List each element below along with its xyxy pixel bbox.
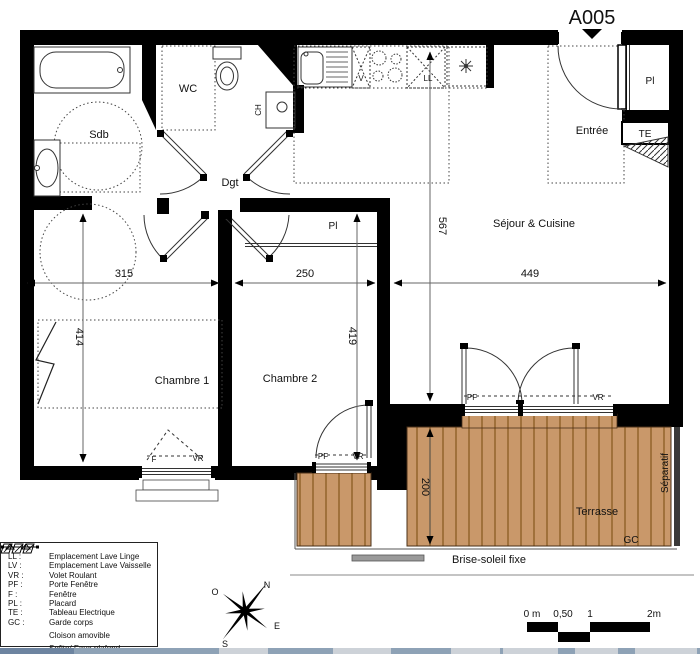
taskbar-sliver-segment[interactable] bbox=[219, 648, 268, 654]
taskbar-sliver-segment[interactable] bbox=[333, 648, 391, 654]
entry-closet bbox=[627, 45, 630, 110]
toilet bbox=[213, 47, 241, 90]
legend-row: GC :Garde corps bbox=[8, 618, 155, 627]
french-window-label-living: PF bbox=[467, 393, 477, 402]
room-label-bedroom2: Chambre 2 bbox=[263, 373, 317, 385]
scale-half: 0,50 bbox=[553, 609, 573, 620]
legend-row: PF :Porte Fenêtre bbox=[8, 580, 155, 589]
shutter-label-living: VR bbox=[592, 393, 603, 402]
taskbar-sliver-segment[interactable] bbox=[503, 648, 558, 654]
sunshade-label: Brise-soleil fixe bbox=[452, 554, 526, 566]
compass-n: N bbox=[264, 580, 271, 590]
shutter-label-bedroom2: VR bbox=[352, 452, 363, 461]
hob bbox=[372, 51, 402, 82]
dim-living-depth: 567 bbox=[436, 217, 448, 235]
legend-row: TE :Tableau Electrique bbox=[8, 608, 155, 617]
entrance-door-leaf bbox=[618, 45, 626, 109]
room-label-terrace: Terrasse bbox=[576, 506, 618, 518]
compass-icon: N O E S bbox=[201, 565, 289, 654]
turning-circle-bedroom1 bbox=[40, 204, 136, 300]
scale-bar: 0 m 0,50 1 2m bbox=[524, 609, 661, 642]
terrace-deck bbox=[295, 414, 680, 549]
taskbar-sliver-segment[interactable] bbox=[451, 648, 500, 654]
dishwasher-label: V bbox=[358, 74, 364, 83]
closet-label-entry: Pl bbox=[646, 76, 655, 87]
entrance-marker-icon bbox=[582, 29, 602, 39]
legend-row-movable-partition: Cloison amovible bbox=[8, 631, 155, 640]
bathtub bbox=[34, 47, 130, 93]
scale-two: 2m bbox=[647, 609, 661, 620]
compass-o: O bbox=[211, 587, 218, 597]
dim-bedroom1-depth: 414 bbox=[73, 328, 85, 346]
room-label-entry: Entrée bbox=[576, 125, 608, 137]
closet-label-hall: Pl bbox=[329, 221, 338, 232]
french-window-label-bedroom2: PF bbox=[318, 452, 328, 461]
entry-zone bbox=[548, 46, 624, 183]
separator-label: Séparatif bbox=[660, 453, 671, 493]
shutter-label-bedroom1: VR bbox=[192, 454, 203, 463]
turning-circle-bathroom bbox=[54, 102, 142, 190]
room-label-hallway: Dgt bbox=[221, 177, 238, 189]
legend-row: VR :Volet Roulant bbox=[8, 571, 155, 580]
kitchen-zone bbox=[294, 46, 449, 183]
taskbar-sliver-segment[interactable] bbox=[0, 648, 74, 654]
apartment-id: A005 bbox=[569, 7, 616, 29]
legend: LL :Emplacement Lave Linge LV :Emplaceme… bbox=[0, 542, 158, 647]
water-heater-label: CH bbox=[254, 104, 263, 116]
room-label-wc: WC bbox=[179, 83, 197, 95]
electrical-panel-label: TE bbox=[639, 129, 652, 140]
guard-rail-label: GC bbox=[624, 535, 639, 546]
kitchen-counter bbox=[297, 47, 487, 88]
legend-row: F :Fenêtre bbox=[8, 590, 155, 599]
scale-one: 1 bbox=[587, 609, 593, 620]
window-label-bedroom1: F bbox=[152, 455, 157, 464]
washbasin bbox=[34, 140, 60, 196]
dim-living-width: 449 bbox=[521, 268, 539, 280]
taskbar-sliver-segment[interactable] bbox=[635, 648, 697, 654]
taskbar-sliver-segment[interactable] bbox=[575, 648, 618, 654]
bed-symbol bbox=[36, 322, 56, 404]
separator-wall bbox=[674, 427, 680, 546]
dim-bedroom1-width: 315 bbox=[115, 268, 133, 280]
room-label-living-kitchen: Séjour & Cuisine bbox=[493, 218, 575, 230]
legend-row: PL :Placard bbox=[8, 599, 155, 608]
room-label-bedroom1: Chambre 1 bbox=[155, 375, 209, 387]
washing-machine-label: LL bbox=[424, 74, 433, 83]
dim-bedroom2-depth: 419 bbox=[346, 327, 358, 345]
light-icon bbox=[459, 59, 473, 73]
floor-plan-page: A005 Sdb WC Dgt Entrée Séjour & Cuisine … bbox=[0, 0, 700, 654]
scale-zero: 0 m bbox=[524, 609, 541, 620]
bathroom-zone bbox=[60, 143, 140, 192]
room-label-bathroom: Sdb bbox=[89, 129, 109, 141]
legend-row: LV :Emplacement Lave Vaisselle bbox=[8, 561, 155, 570]
bed-outline bbox=[38, 320, 222, 408]
dim-bedroom2-width: 250 bbox=[296, 268, 314, 280]
dim-terrace-depth: 200 bbox=[419, 478, 431, 496]
water-heater bbox=[266, 92, 295, 128]
compass-e: E bbox=[274, 621, 280, 631]
sunshade-bar bbox=[352, 555, 424, 561]
